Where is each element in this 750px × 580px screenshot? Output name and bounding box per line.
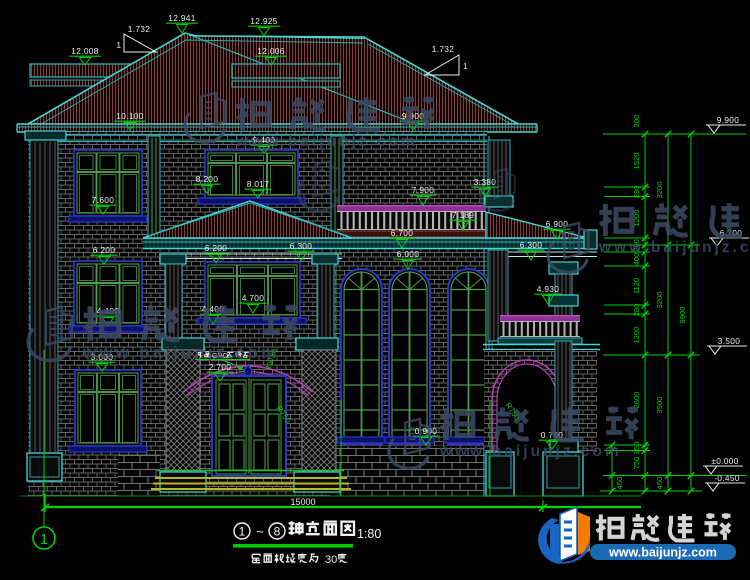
svg-text:1.732: 1.732 <box>432 44 455 54</box>
svg-text:www.baijunjz.com: www.baijunjz.com <box>235 133 418 150</box>
svg-text:1.732: 1.732 <box>128 24 151 34</box>
svg-text:4.930: 4.930 <box>537 284 560 294</box>
svg-text:3.380: 3.380 <box>474 177 497 187</box>
svg-text:1120: 1120 <box>632 278 641 294</box>
svg-text:12.008: 12.008 <box>71 46 98 56</box>
svg-text:1: 1 <box>116 40 121 50</box>
svg-text:450: 450 <box>655 477 664 490</box>
svg-text:1:80: 1:80 <box>357 527 381 541</box>
svg-text:7.600: 7.600 <box>92 195 115 205</box>
svg-text:3200: 3200 <box>655 182 664 199</box>
svg-text:8: 8 <box>274 525 281 539</box>
svg-text:1: 1 <box>239 525 246 539</box>
svg-text:4.700: 4.700 <box>242 293 265 303</box>
svg-text:0.900: 0.900 <box>415 426 438 436</box>
svg-text:~: ~ <box>256 524 264 539</box>
svg-text:1: 1 <box>40 531 48 548</box>
svg-text:3.500: 3.500 <box>718 336 741 346</box>
svg-text:2600: 2600 <box>632 392 641 409</box>
svg-text:9900: 9900 <box>678 307 687 324</box>
svg-text:12.925: 12.925 <box>250 16 277 26</box>
svg-text:www.baijunjz.com: www.baijunjz.com <box>598 239 750 256</box>
svg-text:12.941: 12.941 <box>168 13 195 23</box>
svg-text:200: 200 <box>632 115 641 128</box>
svg-text:15000: 15000 <box>290 497 315 507</box>
svg-text:280: 280 <box>632 186 641 199</box>
svg-text:3200: 3200 <box>655 292 664 309</box>
svg-text:7.189: 7.189 <box>452 210 475 220</box>
svg-text:150: 150 <box>632 442 641 455</box>
svg-text:6.300: 6.300 <box>290 241 313 251</box>
svg-text:-0.450: -0.450 <box>714 473 740 483</box>
svg-text:30: 30 <box>325 554 337 566</box>
svg-text:1520: 1520 <box>632 153 641 170</box>
svg-text:6.700: 6.700 <box>391 228 414 238</box>
svg-text:±0.000: ±0.000 <box>711 456 738 466</box>
svg-text:6.000: 6.000 <box>397 249 420 259</box>
svg-text:www.baijunjz.com: www.baijunjz.com <box>82 343 279 362</box>
svg-text:12.006: 12.006 <box>257 46 284 56</box>
svg-text:280: 280 <box>632 304 641 317</box>
svg-text:6.300: 6.300 <box>520 240 543 250</box>
svg-text:1200: 1200 <box>632 327 641 344</box>
svg-text:10.100: 10.100 <box>116 111 143 121</box>
svg-text:7.900: 7.900 <box>412 185 435 195</box>
svg-text:450: 450 <box>615 477 624 490</box>
svg-text:2.700: 2.700 <box>209 362 232 372</box>
svg-text:6.200: 6.200 <box>205 243 228 253</box>
svg-text:6.200: 6.200 <box>93 245 116 255</box>
svg-text:8.200: 8.200 <box>196 174 219 184</box>
svg-text:9.900: 9.900 <box>717 115 740 125</box>
svg-text:www.baijunjz.com: www.baijunjz.com <box>439 443 622 460</box>
svg-text:3500: 3500 <box>655 397 664 414</box>
svg-text:750: 750 <box>632 457 641 470</box>
svg-text:1: 1 <box>463 61 468 71</box>
svg-text:8.017: 8.017 <box>247 179 270 189</box>
svg-text:www.baijunjz.com: www.baijunjz.com <box>608 546 717 560</box>
